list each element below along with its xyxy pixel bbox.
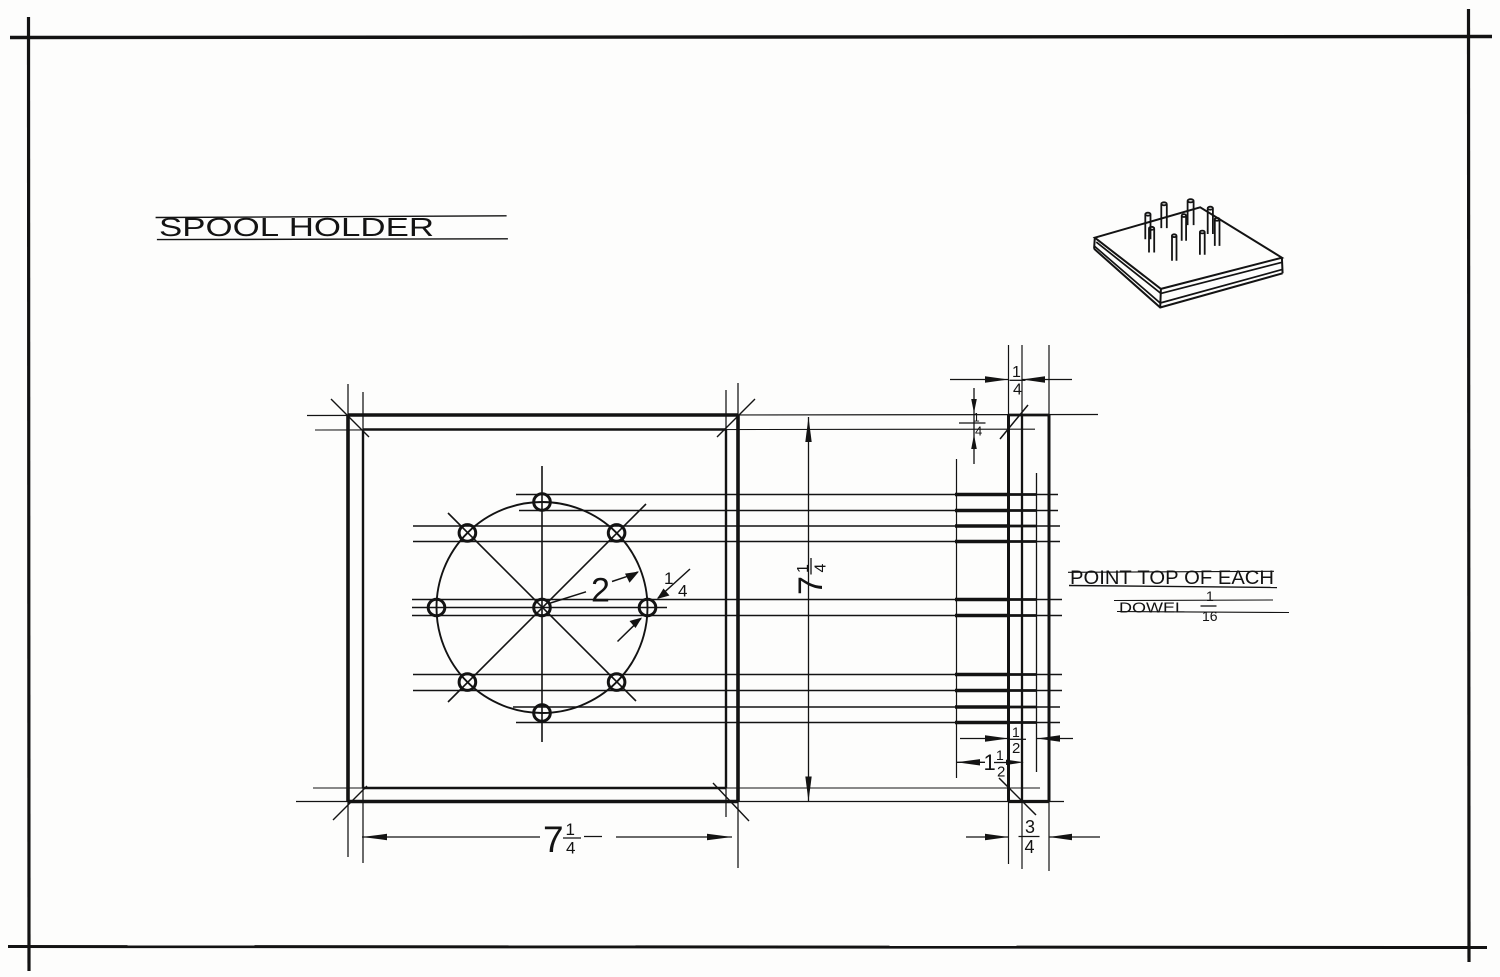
svg-text:4: 4 — [975, 424, 982, 439]
svg-text:3: 3 — [1025, 817, 1035, 837]
svg-text:1: 1 — [984, 750, 996, 775]
svg-text:1: 1 — [1012, 724, 1020, 740]
svg-text:7: 7 — [543, 819, 564, 860]
svg-text:4: 4 — [813, 564, 830, 573]
svg-text:2: 2 — [997, 764, 1005, 781]
svg-text:2: 2 — [1012, 740, 1020, 757]
svg-text:4: 4 — [566, 839, 575, 858]
svg-text:16: 16 — [1202, 608, 1218, 624]
svg-text:1: 1 — [973, 411, 980, 425]
svg-text:7: 7 — [792, 576, 830, 595]
svg-text:1: 1 — [566, 820, 575, 839]
svg-text:1: 1 — [996, 747, 1004, 763]
svg-text:4: 4 — [1013, 382, 1022, 399]
svg-text:SPOOL HOLDER: SPOOL HOLDER — [159, 214, 434, 242]
svg-text:1: 1 — [1206, 588, 1214, 604]
svg-text:1: 1 — [664, 569, 673, 588]
svg-text:4: 4 — [1025, 837, 1035, 857]
svg-text:1: 1 — [1012, 364, 1021, 381]
svg-text:4: 4 — [678, 582, 687, 601]
svg-text:2: 2 — [591, 572, 610, 610]
svg-text:1: 1 — [795, 564, 812, 573]
svg-text:DOWEL: DOWEL — [1119, 600, 1185, 617]
